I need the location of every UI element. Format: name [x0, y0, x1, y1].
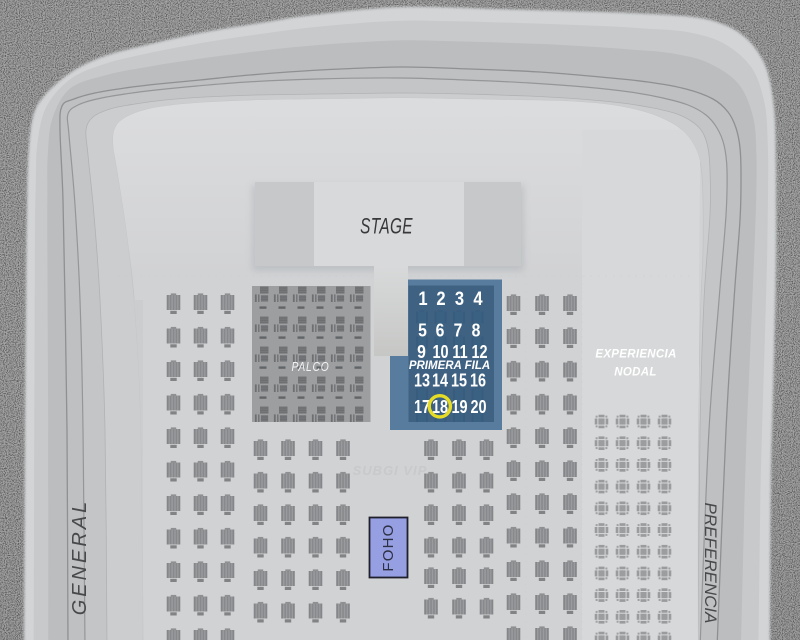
svg-text:4: 4	[473, 288, 482, 310]
svg-text:GENERAL: GENERAL	[69, 499, 91, 616]
svg-text:16: 16	[470, 370, 486, 391]
svg-text:SUBGI VIP: SUBGI VIP	[353, 463, 428, 478]
svg-text:3: 3	[455, 288, 464, 310]
svg-text:STAGE: STAGE	[360, 215, 413, 239]
svg-text:FOHO: FOHO	[380, 523, 397, 571]
svg-text:15: 15	[451, 370, 467, 391]
svg-text:14: 14	[432, 370, 449, 391]
svg-text:20: 20	[470, 396, 486, 417]
svg-text:2: 2	[436, 288, 445, 310]
svg-text:1: 1	[418, 288, 427, 310]
svg-text:19: 19	[451, 396, 467, 417]
svg-text:PALCO: PALCO	[291, 361, 329, 374]
svg-text:EXPERIENCIA: EXPERIENCIA	[595, 349, 676, 361]
svg-text:7: 7	[454, 319, 463, 341]
svg-text:5: 5	[418, 319, 427, 341]
svg-text:PRIMERA FILA: PRIMERA FILA	[409, 360, 490, 372]
svg-text:PREFERENCIA: PREFERENCIA	[701, 503, 720, 624]
svg-text:NODAL: NODAL	[614, 367, 656, 379]
svg-text:8: 8	[472, 319, 481, 341]
svg-text:6: 6	[436, 319, 445, 341]
svg-text:13: 13	[414, 370, 430, 391]
